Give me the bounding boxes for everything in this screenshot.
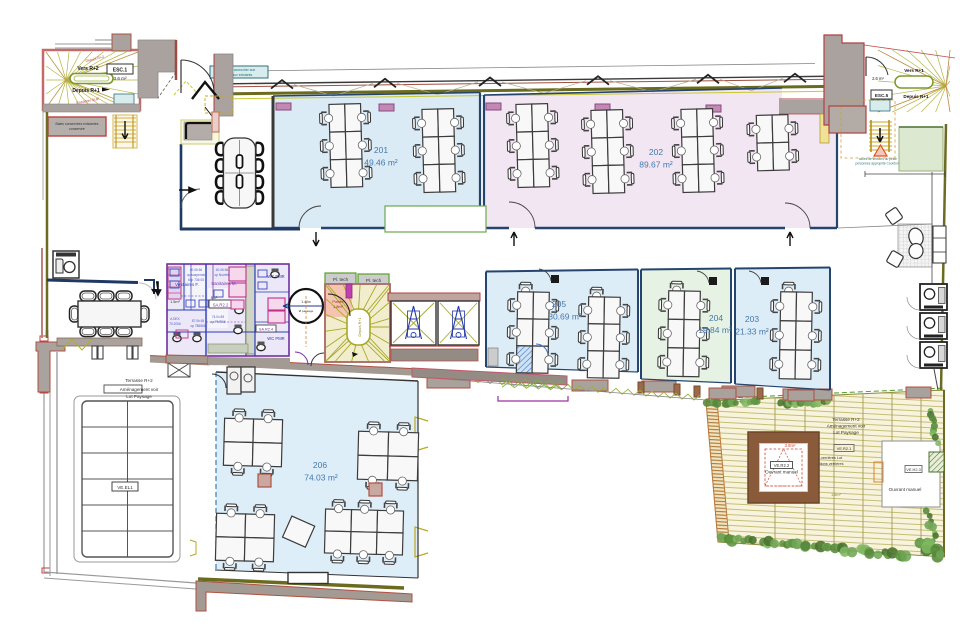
svg-text:VE.H2.3: VE.H2.3 (906, 467, 921, 472)
svg-text:VE.EL1: VE.EL1 (117, 485, 133, 490)
svg-text:40.06 66: 40.06 66 (190, 268, 203, 272)
svg-text:Pl. tech: Pl. tech (366, 278, 382, 283)
svg-text:203: 203 (745, 314, 759, 324)
svg-text:op suspendu: op suspendu (187, 273, 205, 277)
svg-text:op 786866: op 786866 (190, 324, 205, 328)
svg-text:Baies conservées existantes: Baies conservées existantes (56, 122, 99, 126)
svg-text:74.03 m²: 74.03 m² (304, 473, 338, 483)
svg-text:70.2006: 70.2006 (169, 322, 181, 326)
svg-text:...tions verrières: ...tions verrières (816, 462, 843, 466)
svg-text:1.5m²: 1.5m² (170, 300, 180, 304)
svg-text:A DEX: A DEX (170, 317, 180, 321)
svg-text:op PMR66: op PMR66 (210, 320, 225, 324)
svg-text:205: 205 (552, 299, 566, 309)
svg-text:89.67 m²: 89.67 m² (639, 160, 673, 170)
svg-text:202: 202 (649, 147, 663, 157)
svg-text:Depuis R+1: Depuis R+1 (903, 94, 929, 99)
svg-text:ESC.1: ESC.1 (113, 68, 128, 74)
svg-text:Aménagement voir: Aménagement voir (120, 387, 159, 392)
svg-text:Vers R+1: Vers R+1 (904, 68, 924, 73)
svg-text:60p 736 05: 60p 736 05 (188, 278, 204, 282)
svg-text:personnes approprité Coordoné: personnes approprité Coordoné (855, 162, 900, 166)
svg-text:40.06 66: 40.06 66 (216, 268, 229, 272)
svg-text:Pl. tech: Pl. tech (333, 277, 349, 282)
svg-text:Depuis R+1: Depuis R+1 (72, 88, 100, 94)
svg-text:WC PMR: WC PMR (267, 336, 284, 341)
svg-text:30.69 m²: 30.69 m² (548, 312, 582, 322)
svg-text:Lot Paysage: Lot Paysage (833, 430, 859, 435)
svg-text:206: 206 (313, 460, 327, 470)
svg-text:SA.R2.4: SA.R2.4 (259, 328, 273, 332)
svg-text:3.6 m²: 3.6 m² (113, 76, 126, 81)
svg-text:19.84 m²: 19.84 m² (698, 325, 732, 335)
svg-text:Lot Paysage: Lot Paysage (126, 394, 152, 399)
svg-text:1.5m²: 1.5m² (831, 493, 841, 497)
svg-text:21.33 m²: 21.33 m² (735, 327, 769, 337)
svg-text:87.0h 65: 87.0h 65 (192, 319, 205, 323)
svg-text:SA.R2.2: SA.R2.2 (213, 303, 229, 308)
svg-text:Ouvrant manuel: Ouvrant manuel (889, 487, 922, 492)
svg-text:Ø passage: Ø passage (299, 309, 314, 313)
svg-text:Aménagement voir: Aménagement voir (827, 424, 866, 429)
svg-text:49.46 m²: 49.46 m² (364, 158, 398, 168)
svg-text:Vers R+2: Vers R+2 (77, 66, 98, 72)
svg-text:74.0x 85: 74.0x 85 (212, 315, 224, 319)
svg-text:op Novelie: op Novelie (214, 273, 229, 277)
svg-text:3.8m²: 3.8m² (785, 443, 796, 448)
svg-text:...verrières Lot: ...verrières Lot (818, 456, 843, 460)
svg-text:VE.R2.2: VE.R2.2 (774, 463, 790, 468)
svg-text:Terrasse R+2: Terrasse R+2 (125, 378, 153, 383)
svg-text:1.40m: 1.40m (301, 300, 311, 304)
svg-text:conservée: conservée (69, 127, 85, 131)
svg-text:VE.R2.1: VE.R2.1 (837, 446, 852, 451)
svg-text:201: 201 (374, 145, 388, 155)
svg-text:Sanitaires M.: Sanitaires M. (211, 281, 237, 286)
svg-text:204: 204 (709, 313, 723, 323)
svg-text:ESC.5: ESC.5 (875, 93, 889, 98)
svg-text:2.6 m²: 2.6 m² (872, 76, 884, 81)
svg-text:Terrasse R+2: Terrasse R+2 (832, 417, 860, 422)
svg-text:Depuis R+1: Depuis R+1 (358, 318, 362, 337)
svg-text:1.8m²: 1.8m² (333, 305, 343, 309)
svg-text:Portée: Portée (332, 300, 343, 304)
svg-text:WC PMR: WC PMR (267, 274, 284, 279)
svg-text:Ouvrant manuel: Ouvrant manuel (765, 470, 798, 475)
